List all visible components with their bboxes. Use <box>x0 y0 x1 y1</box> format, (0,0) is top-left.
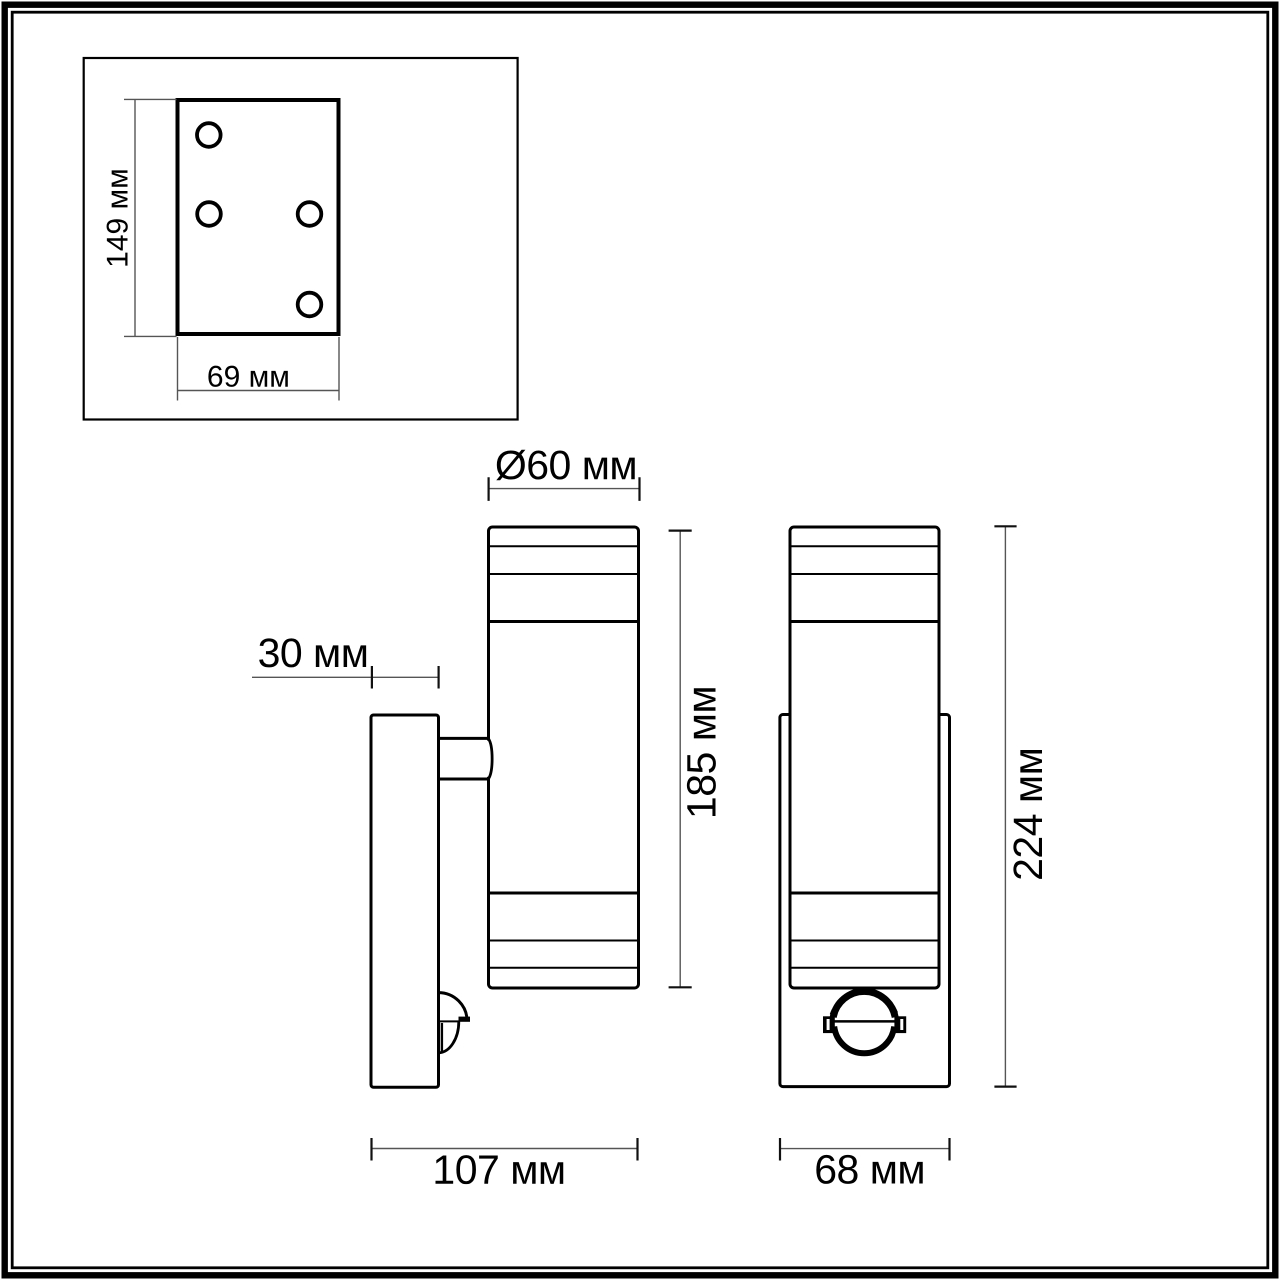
svg-text:68 мм: 68 мм <box>814 1146 925 1192</box>
svg-text:224 мм: 224 мм <box>1005 748 1051 881</box>
svg-text:107 мм: 107 мм <box>432 1147 565 1193</box>
svg-text:185 мм: 185 мм <box>678 686 724 819</box>
svg-text:Ø60 мм: Ø60 мм <box>495 442 637 488</box>
svg-text:30 мм: 30 мм <box>258 630 369 676</box>
svg-text:149 мм: 149 мм <box>101 168 134 268</box>
svg-text:69 мм: 69 мм <box>207 361 290 394</box>
